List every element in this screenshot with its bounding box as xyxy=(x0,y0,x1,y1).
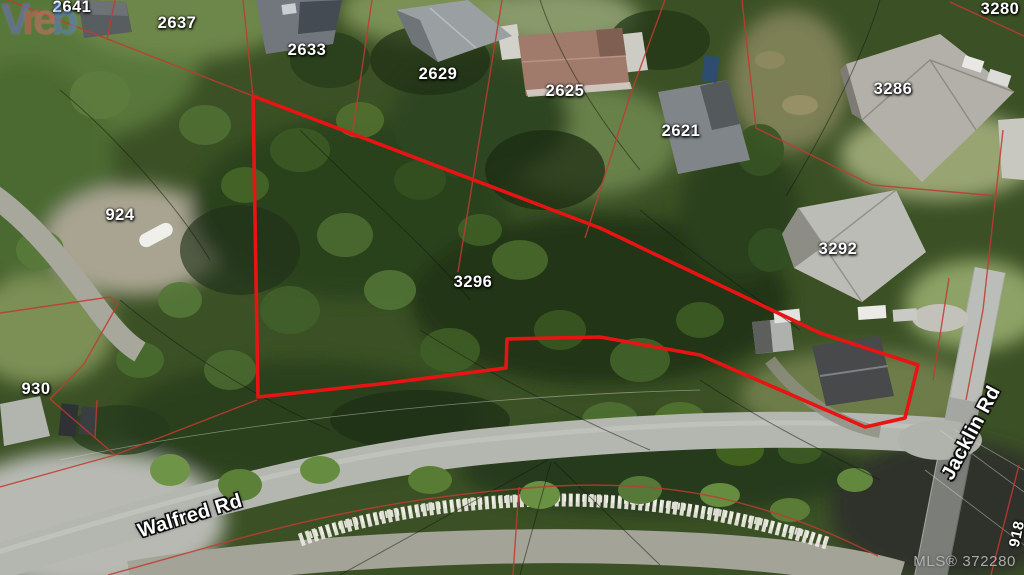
label-layer: 2641263726332629262526213280328632923296… xyxy=(0,0,1024,575)
parcel-label-2633: 2633 xyxy=(288,42,327,59)
parcel-label-3296: 3296 xyxy=(454,274,493,291)
parcel-label-3280: 3280 xyxy=(981,1,1020,18)
aerial-map: 2641263726332629262526213280328632923296… xyxy=(0,0,1024,575)
parcel-label-924: 924 xyxy=(105,207,134,224)
watermark-letter: V xyxy=(1,0,22,44)
parcel-label-2625: 2625 xyxy=(546,83,585,100)
parcel-label-2629: 2629 xyxy=(419,66,458,83)
vreb-watermark-logo: Vreb xyxy=(1,0,72,42)
parcel-label-930: 930 xyxy=(21,381,50,398)
parcel-label-3292: 3292 xyxy=(819,241,858,258)
watermark-letter: r xyxy=(22,0,33,44)
parcel-label-918: 918 xyxy=(1007,519,1024,548)
parcel-label-2637: 2637 xyxy=(158,15,197,32)
road-label-walfred-rd: Walfred Rd xyxy=(136,491,245,542)
mls-number: MLS® 372280 xyxy=(913,553,1016,570)
parcel-label-3286: 3286 xyxy=(874,81,913,98)
road-label-jacklin-rd: Jacklin Rd xyxy=(938,383,1004,483)
parcel-label-2621: 2621 xyxy=(662,123,701,140)
watermark-letter: b xyxy=(52,0,73,44)
watermark-letter: e xyxy=(33,0,51,44)
